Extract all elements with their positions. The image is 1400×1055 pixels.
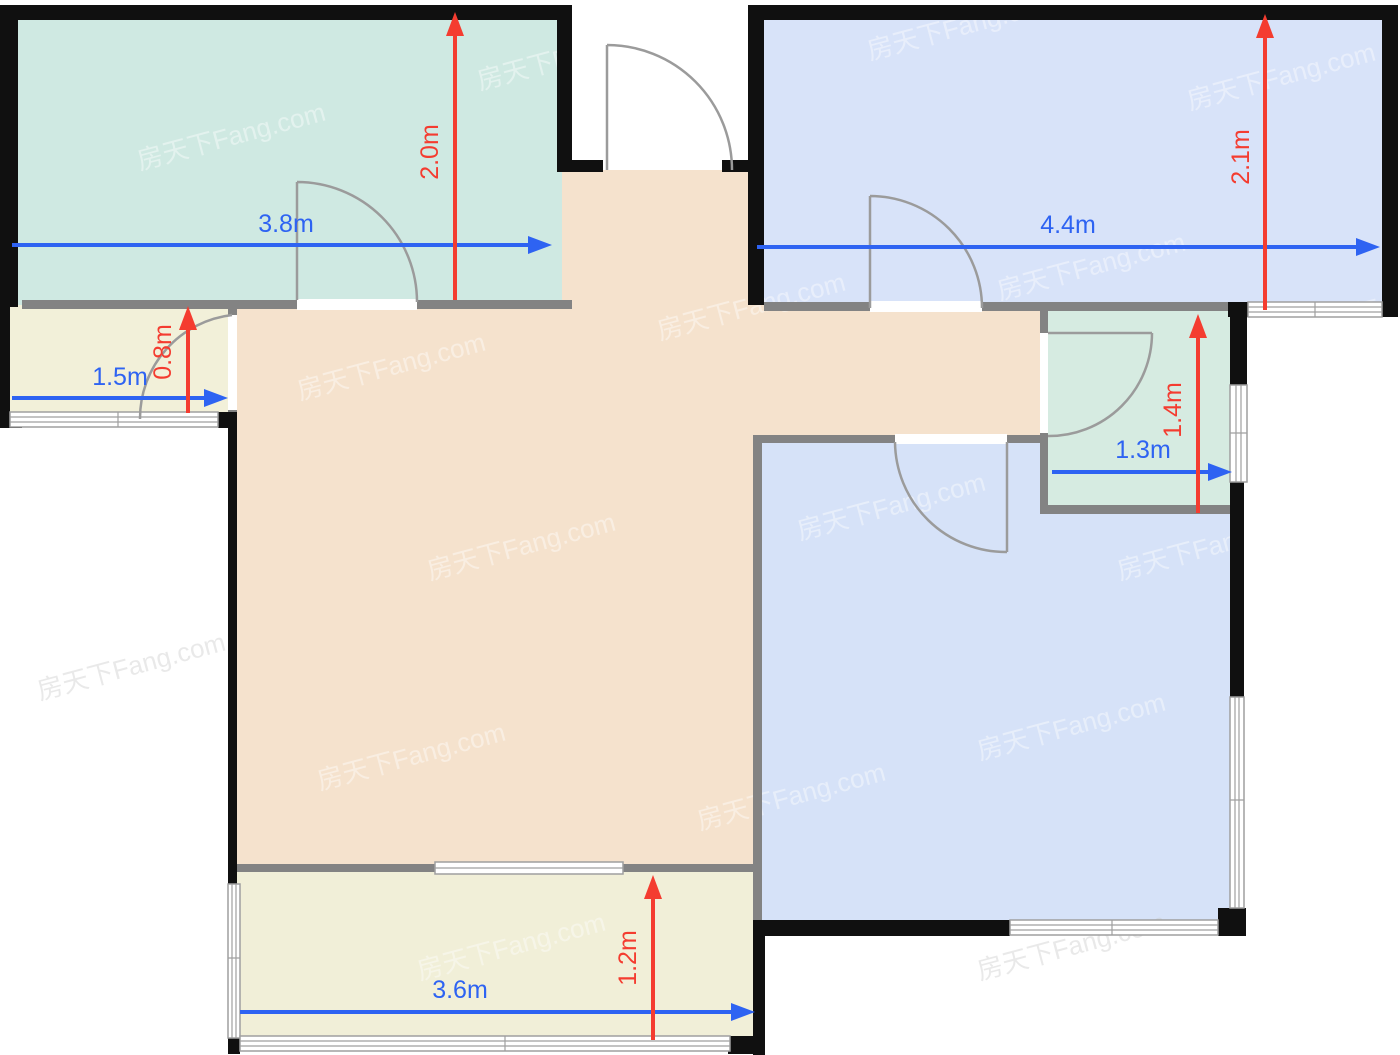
wall <box>764 302 870 311</box>
dim-label: 3.6m <box>432 976 488 1004</box>
wall <box>557 160 603 172</box>
door-gap <box>1040 333 1048 433</box>
wall <box>228 302 237 315</box>
wall <box>1218 908 1246 936</box>
wall <box>982 302 1228 311</box>
door-gap <box>297 299 417 310</box>
dim-label: 1.4m <box>1159 382 1187 438</box>
wall <box>1040 433 1048 513</box>
wall <box>1230 305 1247 385</box>
wall <box>228 424 237 884</box>
wall <box>0 302 10 424</box>
wall <box>228 1038 240 1054</box>
wall <box>722 160 752 172</box>
wall <box>748 5 764 305</box>
door-gap <box>870 301 982 312</box>
wall <box>0 5 18 307</box>
window <box>240 1036 730 1051</box>
dim-label: 1.5m <box>92 363 148 391</box>
wall <box>756 435 895 443</box>
floorplan-canvas: 房天下Fang.com 房天下Fang.com 房天下Fang.com 房天下F… <box>0 0 1400 1055</box>
door-gap <box>895 434 1007 444</box>
dim-label: 1.2m <box>614 930 642 986</box>
dim-label: 1.3m <box>1115 436 1171 464</box>
window <box>10 412 218 427</box>
wall <box>557 5 572 172</box>
watermark-text: 房天下Fang.com <box>34 627 229 706</box>
wall <box>1382 5 1398 317</box>
dim-label: 2.0m <box>416 124 444 180</box>
wall <box>228 864 435 872</box>
wall <box>753 920 765 1055</box>
sliding-door <box>435 862 623 874</box>
window <box>1010 920 1218 935</box>
wall <box>753 920 1010 936</box>
window <box>1248 302 1382 317</box>
floorplan-screenshot: 房天下Fang.com 房天下Fang.com 房天下Fang.com 房天下F… <box>0 0 1400 1055</box>
dim-label: 3.8m <box>258 210 314 238</box>
wall <box>1230 482 1244 697</box>
wall <box>748 5 1397 20</box>
wall <box>623 864 756 872</box>
wall <box>0 5 572 20</box>
window <box>228 884 240 1038</box>
wall <box>1040 307 1048 333</box>
dim-label: 0.8m <box>149 324 177 380</box>
room-bedroom-left <box>16 16 562 306</box>
wall <box>417 300 572 309</box>
dim-label: 2.1m <box>1227 129 1255 185</box>
dim-label: 4.4m <box>1040 211 1096 239</box>
wall <box>1040 505 1235 514</box>
window <box>1230 385 1247 482</box>
wall <box>1007 435 1045 443</box>
door-entry <box>607 45 732 170</box>
wall <box>753 435 762 925</box>
wall <box>22 300 297 309</box>
room-fills <box>8 16 1388 1044</box>
window <box>1230 697 1244 908</box>
door-gap <box>228 315 237 410</box>
